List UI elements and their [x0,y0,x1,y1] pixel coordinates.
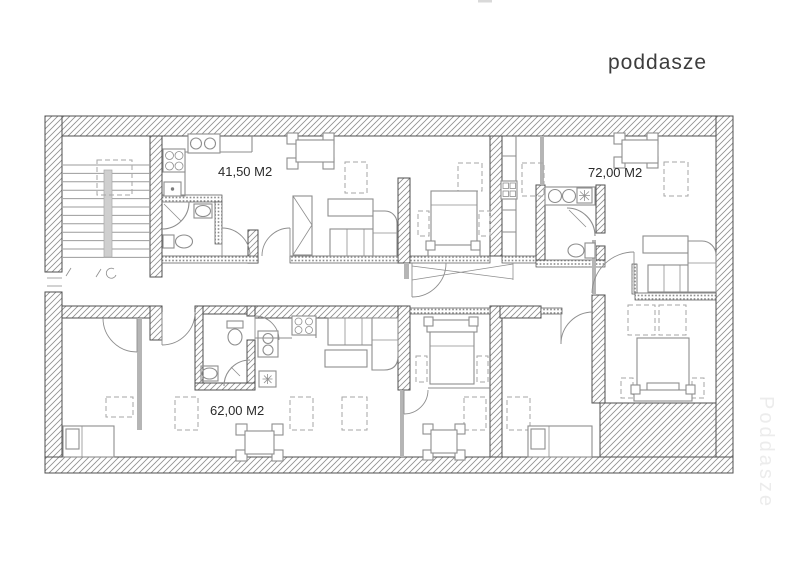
stair-mark [96,269,101,277]
slope-marker [412,263,513,280]
door-arc [103,318,137,352]
apt3-left-bedroom [63,318,137,457]
coffee-table [325,350,367,367]
apt2-dining [614,133,658,168]
apt3-dining-2 [423,424,465,460]
apt2-living [643,236,716,292]
coffee-table [328,199,373,216]
bottom-right-bedroom [621,305,704,401]
area-label-apartment-3: 62,00 M2 [210,403,264,418]
apt3-bedroom [404,317,490,414]
coffee-table [643,236,688,253]
apt2-bathroom [545,187,595,258]
stair-mark [106,268,116,278]
area-label-apartment-1: 41,50 M2 [218,164,272,179]
door-arc [162,312,195,345]
door-arc [404,390,428,414]
bed [637,338,689,398]
apartment-divider-wall [490,136,502,256]
lower-right-room [507,397,592,457]
apt3-kitchen [255,316,316,387]
apt3-dining-1 [236,424,283,461]
sofa-corner [373,211,397,256]
dining-table [245,431,274,454]
door-arc [262,228,290,256]
door-arc [561,312,593,344]
area-label-apartment-2: 72,00 M2 [588,165,642,180]
apt1-bedroom [418,163,490,256]
apt1-bathroom [162,202,250,256]
toilet [585,243,595,258]
scan-artifact [478,0,492,3]
page-title: poddasze [608,51,707,74]
dining-table [431,430,457,453]
watermark: Poddasze [755,396,777,509]
bed [430,332,474,384]
dining-table [622,140,658,163]
apt2-kitchen [501,136,517,256]
toilet [227,321,243,328]
washbasin [194,204,212,218]
apartment-1: 41,50 M2 [162,133,490,256]
bed [528,426,592,457]
staircase [63,160,150,278]
floor-plan-page: 41,50 M2 [0,0,800,576]
sofa-corner [688,241,716,292]
stairwell-wall [150,136,162,277]
bed-headboard [634,390,692,401]
stair-stringer [104,170,112,257]
roof-slope-block [600,403,716,457]
apt3-living [325,318,398,370]
sofa [328,318,378,345]
door-arc [222,228,250,256]
bed [63,426,114,457]
floor-plan-svg: 41,50 M2 [0,0,800,576]
sofa-corner [372,318,398,370]
apt1-living [287,133,397,256]
apartment-3: 62,00 M2 [63,316,490,461]
wardrobe [293,196,312,255]
dining-table [296,140,334,162]
toilet [163,235,174,248]
stair-mark [66,268,71,276]
